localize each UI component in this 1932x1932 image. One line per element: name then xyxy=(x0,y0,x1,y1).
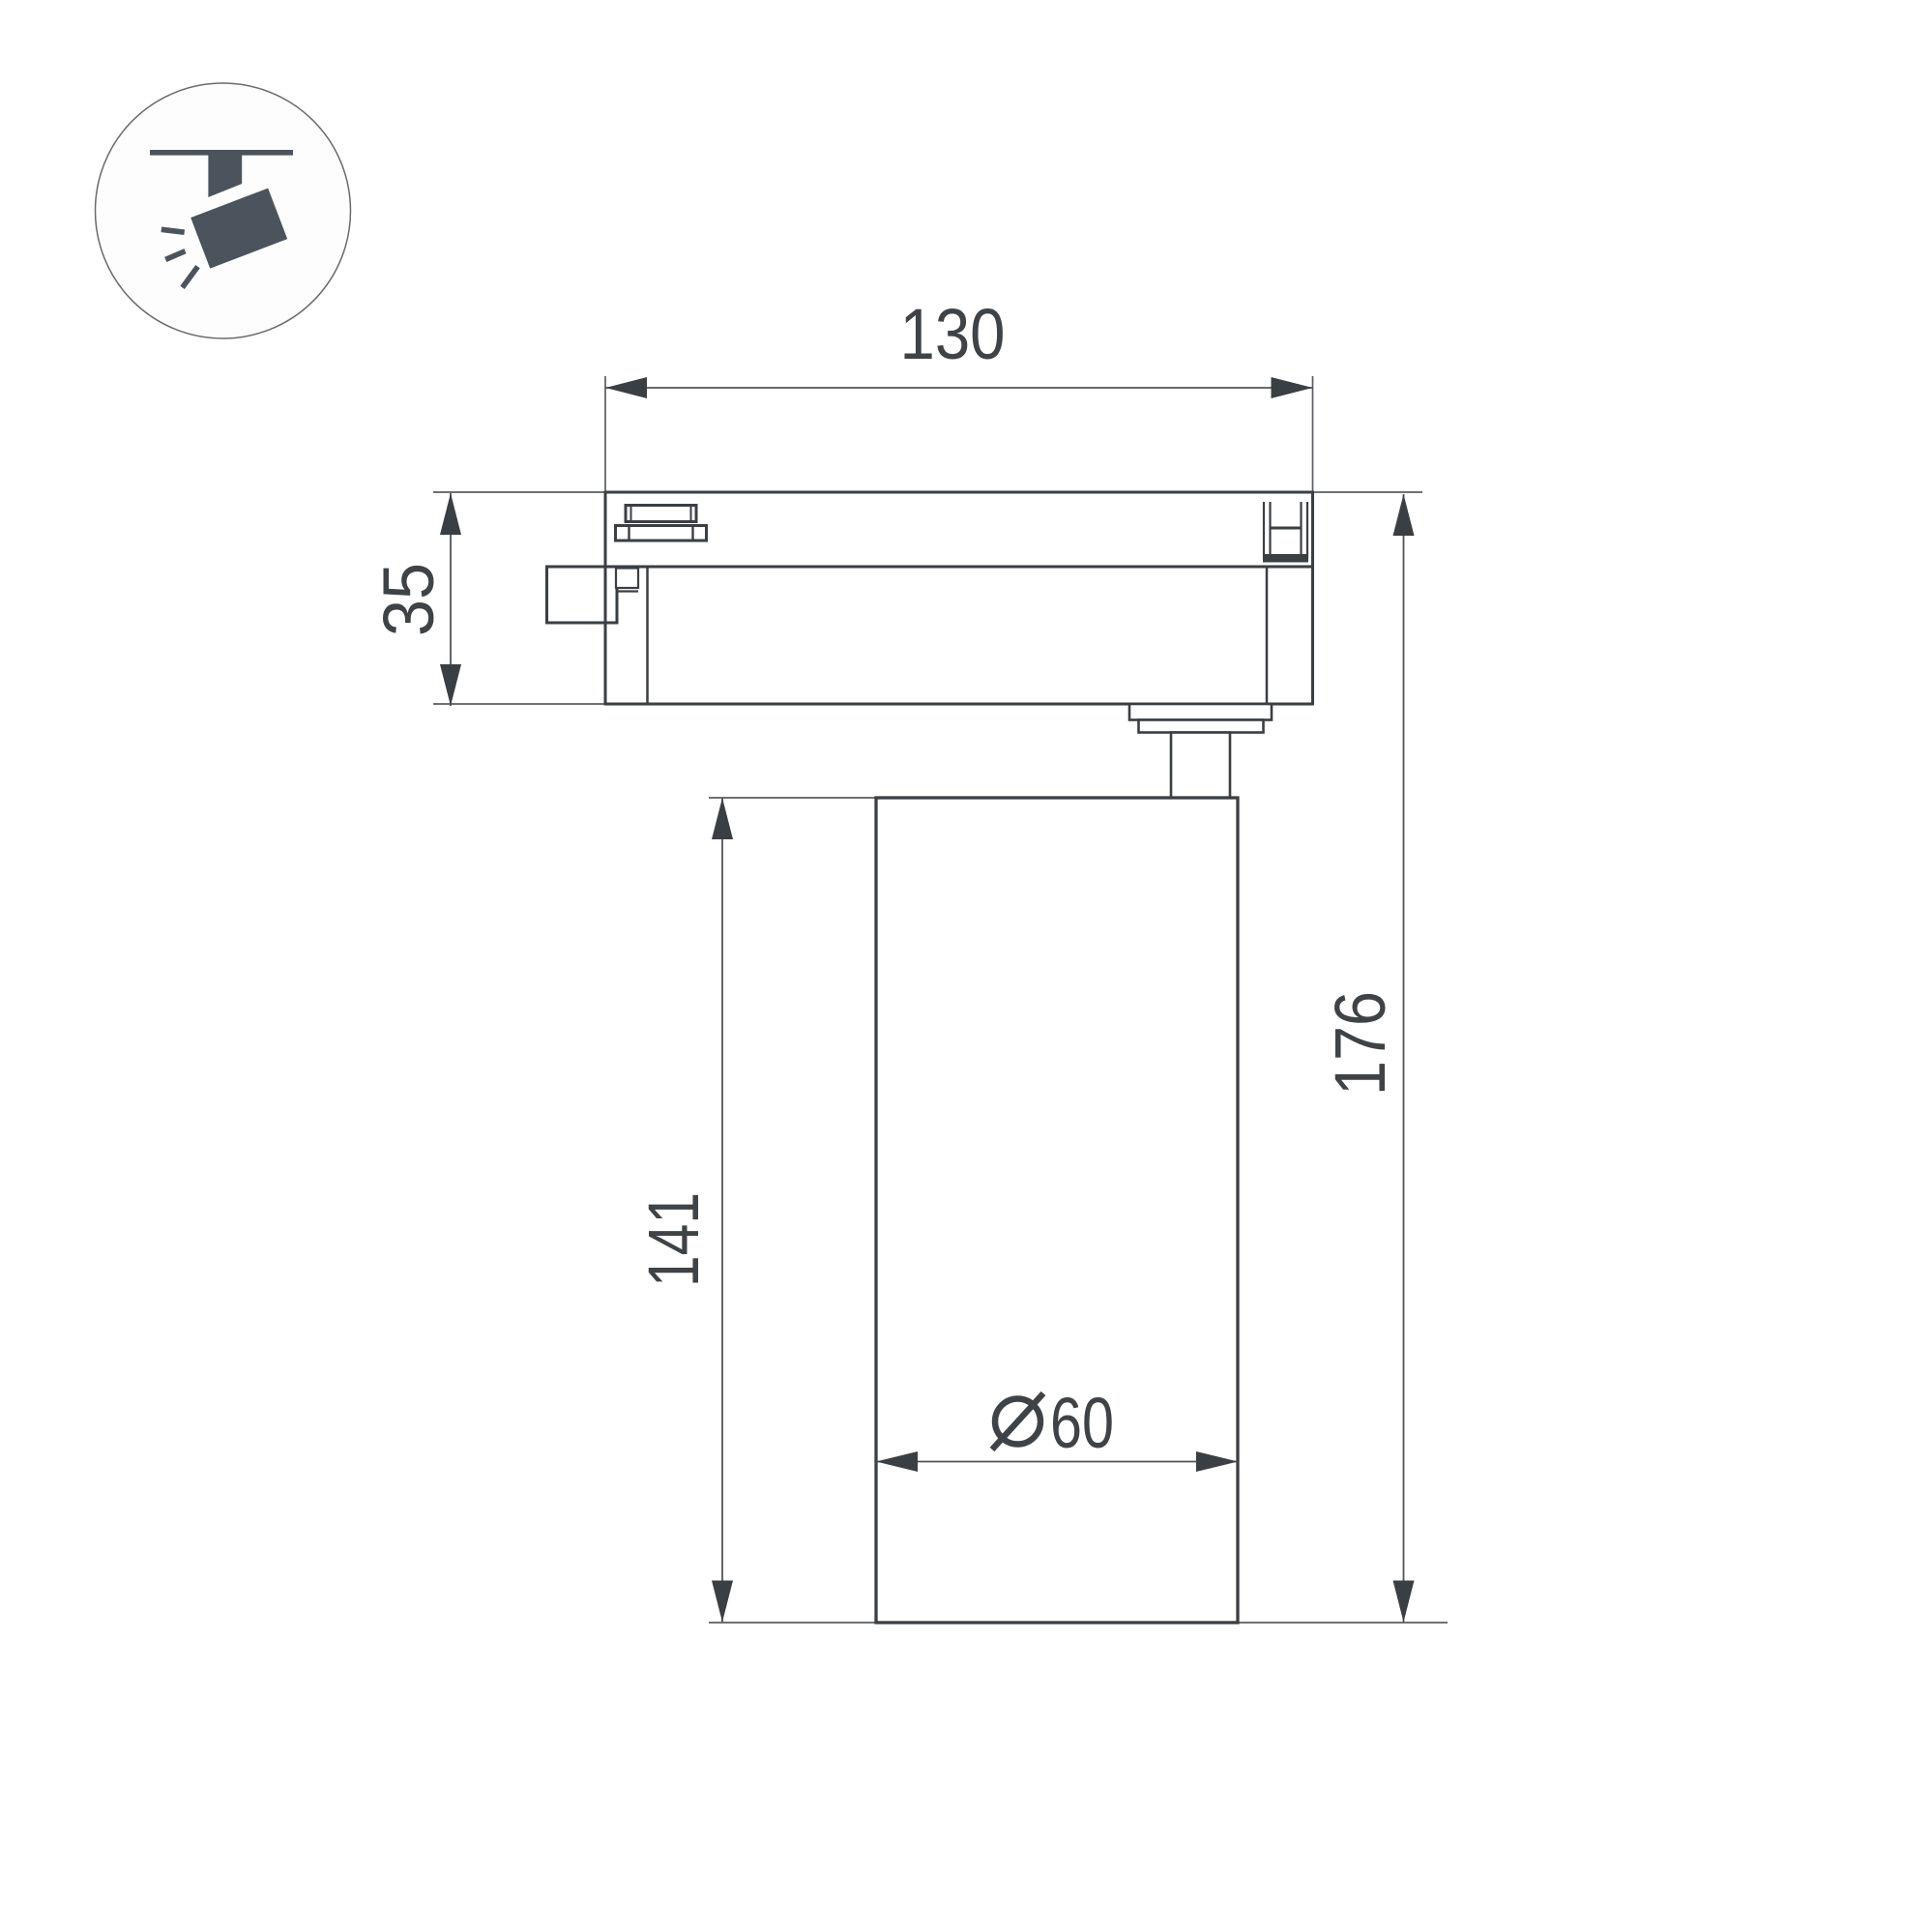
svg-text:60: 60 xyxy=(1050,1383,1114,1463)
svg-text:141: 141 xyxy=(633,1192,714,1287)
svg-text:176: 176 xyxy=(1320,991,1400,1096)
svg-text:35: 35 xyxy=(368,563,449,636)
svg-text:130: 130 xyxy=(900,294,1006,374)
